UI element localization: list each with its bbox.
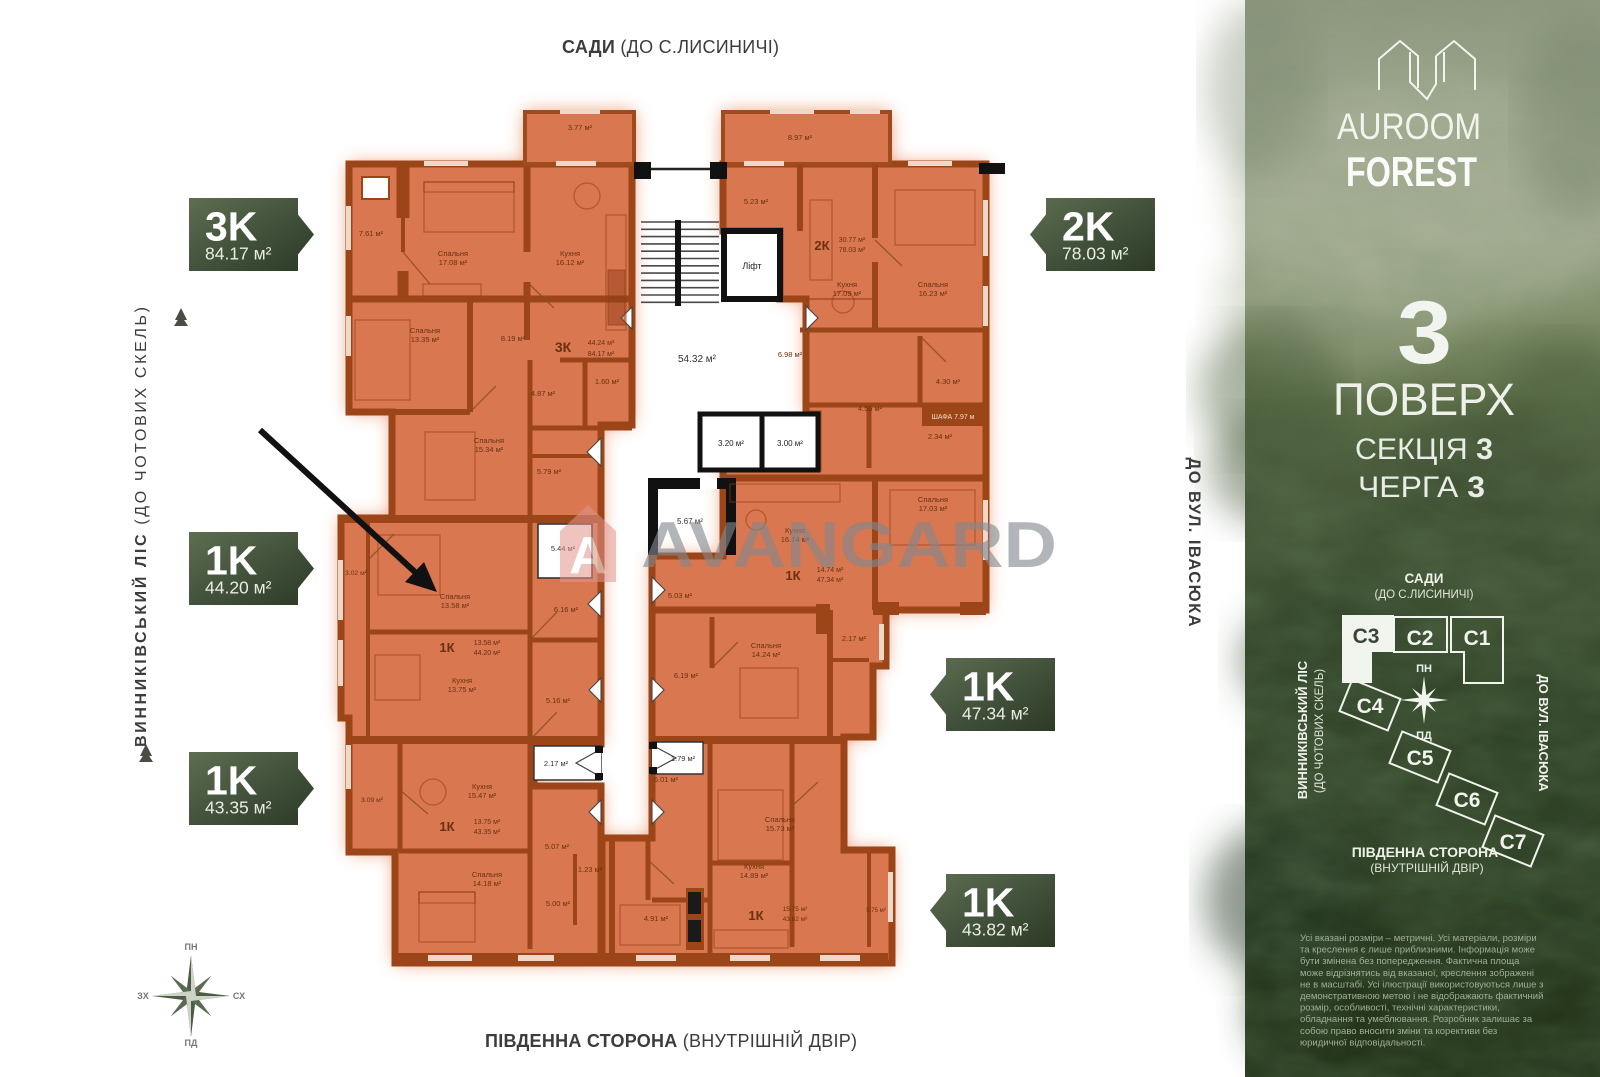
svg-text:78.03 м²: 78.03 м²	[1062, 243, 1129, 263]
svg-text:6.98 м²: 6.98 м²	[778, 350, 803, 359]
svg-text:FOREST: FOREST	[1346, 148, 1477, 195]
svg-text:ПІВДЕННА СТОРОНА (ВНУТРІШНІЙ Д: ПІВДЕННА СТОРОНА (ВНУТРІШНІЙ ДВІР)	[485, 1030, 857, 1051]
svg-text:C4: C4	[1357, 695, 1384, 718]
svg-text:ДО ВУЛ. ІВАСЮКА: ДО ВУЛ. ІВАСЮКА	[1185, 458, 1203, 627]
svg-text:4.56 м²: 4.56 м²	[858, 404, 883, 413]
svg-text:7.61 м²: 7.61 м²	[359, 229, 384, 238]
svg-text:Спальня15.73 м²: Спальня15.73 м²	[765, 815, 795, 833]
svg-text:44.24 м²: 44.24 м²	[588, 340, 615, 347]
svg-text:5.00 м²: 5.00 м²	[546, 899, 571, 908]
svg-text:ДО ВУЛ. ІВАСЮКА: ДО ВУЛ. ІВАСЮКА	[1536, 674, 1551, 792]
svg-text:54.32 м²: 54.32 м²	[678, 354, 717, 365]
svg-text:15.75 м²: 15.75 м²	[783, 906, 809, 913]
svg-text:43.35 м²: 43.35 м²	[474, 829, 501, 836]
svg-text:ПН: ПН	[185, 942, 198, 952]
svg-text:ПД: ПД	[185, 1038, 198, 1048]
svg-text:5.79 м²: 5.79 м²	[537, 467, 562, 476]
svg-text:3.02 м²: 3.02 м²	[345, 570, 368, 577]
svg-text:8.97 м²: 8.97 м²	[788, 133, 813, 142]
svg-text:1.60 м²: 1.60 м²	[595, 377, 620, 386]
svg-text:(ДО ЧОТОВИХ СКЕЛЬ): (ДО ЧОТОВИХ СКЕЛЬ)	[1314, 669, 1326, 793]
svg-text:13.75 м²: 13.75 м²	[474, 819, 501, 826]
svg-text:84.17 м²: 84.17 м²	[588, 351, 615, 358]
svg-text:САДИ (ДО С.ЛИСИНИЧІ): САДИ (ДО С.ЛИСИНИЧІ)	[562, 37, 779, 57]
svg-text:2.17 м²: 2.17 м²	[842, 634, 867, 643]
svg-text:Ліфт: Ліфт	[742, 261, 761, 271]
svg-text:1К: 1К	[439, 640, 454, 655]
svg-text:5.75 м²: 5.75 м²	[866, 908, 885, 914]
svg-text:6.16 м²: 6.16 м²	[554, 605, 579, 614]
svg-text:2.17 м²: 2.17 м²	[544, 759, 569, 768]
svg-text:C6: C6	[1454, 789, 1481, 812]
svg-text:1К: 1К	[439, 819, 454, 834]
svg-text:44.20 м²: 44.20 м²	[205, 577, 272, 597]
svg-text:САДИ: САДИ	[1405, 571, 1444, 586]
svg-text:C2: C2	[1407, 627, 1434, 650]
svg-text:Спальня16.23 м²: Спальня16.23 м²	[918, 280, 948, 298]
svg-text:Спальня13.35 м²: Спальня13.35 м²	[410, 326, 440, 344]
svg-text:43.82 м²: 43.82 м²	[962, 919, 1029, 939]
svg-text:ВИННИКІВСЬКИЙ ЛІС: ВИННИКІВСЬКИЙ ЛІС	[1295, 660, 1310, 799]
svg-text:3: 3	[1397, 282, 1452, 382]
svg-text:4.30 м²: 4.30 м²	[936, 377, 961, 386]
svg-text:СХ: СХ	[233, 991, 245, 1001]
svg-text:47.34 м²: 47.34 м²	[962, 703, 1029, 723]
svg-text:5.16 м²: 5.16 м²	[546, 696, 571, 705]
svg-text:30.77 м²: 30.77 м²	[839, 237, 866, 244]
svg-text:6.01 м²: 6.01 м²	[654, 775, 679, 784]
svg-text:AUROOM: AUROOM	[1337, 106, 1481, 147]
svg-text:ПН: ПН	[1416, 663, 1432, 675]
svg-text:1К: 1К	[748, 908, 763, 923]
svg-text:C3: C3	[1353, 625, 1380, 648]
svg-text:(ДО С.ЛИСИНИЧІ): (ДО С.ЛИСИНИЧІ)	[1375, 589, 1474, 601]
svg-text:78.03 м²: 78.03 м²	[839, 247, 866, 254]
svg-text:6.19 м²: 6.19 м²	[674, 671, 699, 680]
svg-text:C7: C7	[1500, 831, 1527, 854]
svg-text:Спальня14.18 м²: Спальня14.18 м²	[472, 870, 502, 888]
svg-text:Спальня17.08 м²: Спальня17.08 м²	[438, 249, 468, 267]
svg-text:Спальня13.58 м²: Спальня13.58 м²	[440, 592, 470, 610]
svg-text:3.00 м²: 3.00 м²	[777, 439, 803, 448]
svg-text:43.82 м²: 43.82 м²	[783, 916, 809, 923]
svg-text:ПІВДЕННА СТОРОНА: ПІВДЕННА СТОРОНА	[1352, 844, 1499, 860]
svg-text:84.17 м²: 84.17 м²	[205, 243, 272, 263]
svg-text:C1: C1	[1464, 627, 1491, 650]
svg-text:5.03 м²: 5.03 м²	[668, 591, 693, 600]
svg-text:4.87 м²: 4.87 м²	[531, 389, 556, 398]
svg-text:2.34 м²: 2.34 м²	[928, 432, 953, 441]
svg-text:5.23 м²: 5.23 м²	[744, 197, 769, 206]
svg-text:AVANGARD: AVANGARD	[641, 508, 1057, 581]
svg-text:3.77 м²: 3.77 м²	[568, 123, 593, 132]
svg-text:Спальня14.24 м²: Спальня14.24 м²	[751, 641, 781, 659]
svg-text:13.58 м²: 13.58 м²	[474, 640, 501, 647]
svg-text:3К: 3К	[555, 339, 572, 355]
svg-text:(ВНУТРІШНІЙ ДВІР): (ВНУТРІШНІЙ ДВІР)	[1370, 860, 1483, 875]
svg-text:8.19 м²: 8.19 м²	[501, 334, 526, 343]
svg-text:43.35 м²: 43.35 м²	[205, 797, 272, 817]
svg-text:5.07 м²: 5.07 м²	[545, 842, 570, 851]
svg-text:C5: C5	[1407, 747, 1434, 770]
svg-text:СЕКЦІЯ 3: СЕКЦІЯ 3	[1355, 433, 1493, 466]
svg-text:1.79 м²: 1.79 м²	[671, 754, 696, 763]
svg-text:3.20 м²: 3.20 м²	[718, 439, 744, 448]
svg-text:ЗХ: ЗХ	[137, 991, 149, 1001]
svg-text:ПОВЕРХ: ПОВЕРХ	[1333, 374, 1515, 425]
svg-text:ШАФА 7.97 м: ШАФА 7.97 м	[931, 414, 974, 421]
svg-text:Спальня15.34 м²: Спальня15.34 м²	[474, 436, 504, 454]
svg-text:44.20 м²: 44.20 м²	[474, 650, 501, 657]
svg-text:2К: 2К	[814, 238, 829, 253]
svg-text:3.09 м²: 3.09 м²	[361, 797, 384, 804]
svg-text:1.23 м²: 1.23 м²	[578, 865, 603, 874]
svg-text:ЧЕРГА 3: ЧЕРГА 3	[1358, 471, 1485, 504]
svg-text:4.91 м²: 4.91 м²	[644, 914, 669, 923]
svg-text:A: A	[569, 527, 607, 585]
